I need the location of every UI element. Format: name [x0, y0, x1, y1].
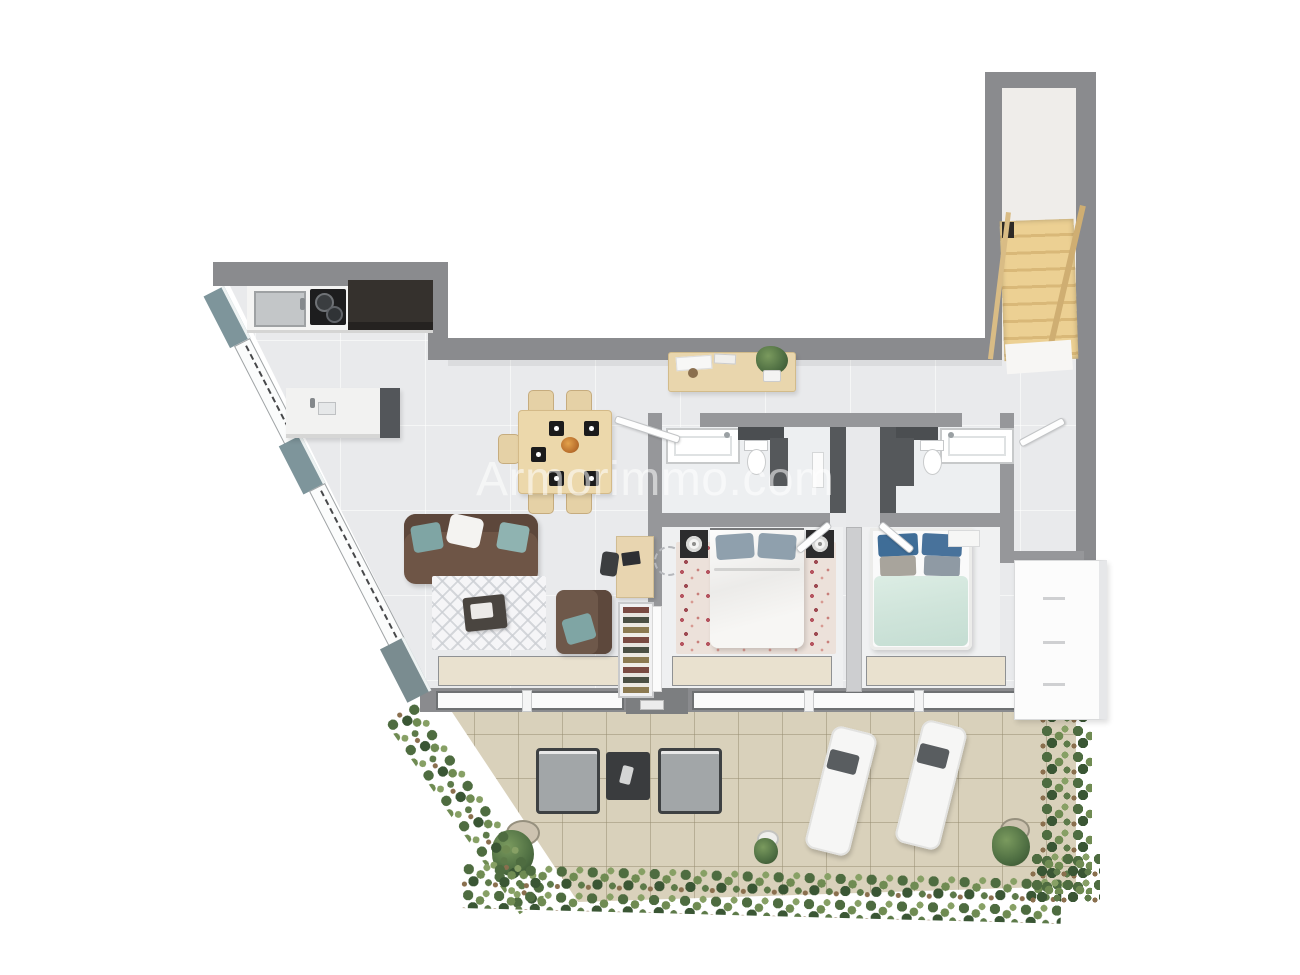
coffee-table-tray [470, 602, 493, 619]
island-faucet [310, 398, 315, 408]
placemat [549, 421, 564, 436]
bed1-pillow-right [757, 533, 797, 561]
kitchen-tall-cabinet [348, 280, 433, 330]
wall-between-bedrooms [846, 527, 862, 692]
console-book [714, 353, 736, 364]
shoe-rack-shelves [623, 607, 649, 693]
watermark: Armorimmo.com [476, 452, 835, 507]
bath-hall-floor [846, 427, 880, 527]
threshold-living [438, 656, 628, 686]
sliding-door-living-2 [530, 691, 624, 710]
cooktop-pot-2 [326, 306, 343, 323]
island-dark-end [380, 388, 400, 438]
outdoor-chair-right [658, 748, 722, 814]
desk-chair [599, 551, 619, 577]
desk [616, 536, 654, 598]
bed2-pillow-gray-left [880, 555, 917, 576]
console-plant-pot [763, 370, 781, 382]
sofa-cushion-teal-right [496, 522, 530, 554]
threshold-bedroom-1 [672, 656, 832, 686]
shoe-rack-side-panel [652, 606, 662, 692]
bed2-pillow-gray-right [924, 555, 961, 576]
stair-landing [1005, 340, 1073, 375]
dresser [1014, 560, 1107, 720]
facade-post [522, 690, 532, 712]
sofa [404, 514, 538, 584]
bed1-fold [714, 568, 800, 571]
dresser-handle [1043, 597, 1065, 600]
dresser-handle [1043, 683, 1065, 686]
kitchen-faucet [300, 298, 305, 310]
sofa-throw-white [445, 513, 484, 549]
shoe-rack [618, 602, 654, 698]
dresser-handle [1043, 641, 1065, 644]
terrace-plant-mid [754, 838, 778, 864]
sliding-door-bedroom-1 [692, 691, 806, 710]
facade-post [914, 690, 924, 712]
placemat [584, 421, 599, 436]
terrace-plant-right [992, 826, 1030, 866]
shoe-rack-label [640, 700, 664, 710]
bed1-pillow-left [715, 533, 755, 561]
sliding-door-living-1 [436, 691, 524, 710]
facade-post [804, 690, 814, 712]
sliding-door-mid [812, 691, 916, 710]
shower-partition-right [880, 427, 896, 513]
wall-bath-top-b [700, 413, 962, 427]
wall-under-bath-right [880, 513, 1013, 527]
wall-under-bath-left [662, 513, 830, 527]
threshold-bedroom-2 [866, 656, 1006, 686]
bath2-faucet [948, 432, 954, 438]
hedge-corner [1030, 852, 1100, 904]
bath1-faucet [724, 432, 730, 438]
table-centerpiece [561, 437, 579, 453]
bath2-partition-vert [896, 438, 914, 486]
outdoor-chair-left [536, 748, 600, 814]
console-bowl [688, 368, 698, 378]
sofa-cushion-teal-left [410, 522, 444, 554]
bed2-duvet-mint [874, 576, 968, 646]
bedroom2-bench [948, 530, 980, 547]
coffee-table [462, 594, 507, 632]
desk-laptop [621, 551, 641, 566]
island-sink [318, 402, 336, 415]
table-lamp [686, 536, 702, 552]
toilet-2-bowl [923, 449, 942, 475]
armchair [556, 590, 612, 654]
floor-plan-render: Armorimmo.com [0, 0, 1300, 975]
bed-1 [710, 528, 804, 648]
armchair-cushion-teal [561, 612, 597, 645]
kitchen-sink [254, 291, 306, 327]
nightstand-1-left [680, 530, 708, 558]
